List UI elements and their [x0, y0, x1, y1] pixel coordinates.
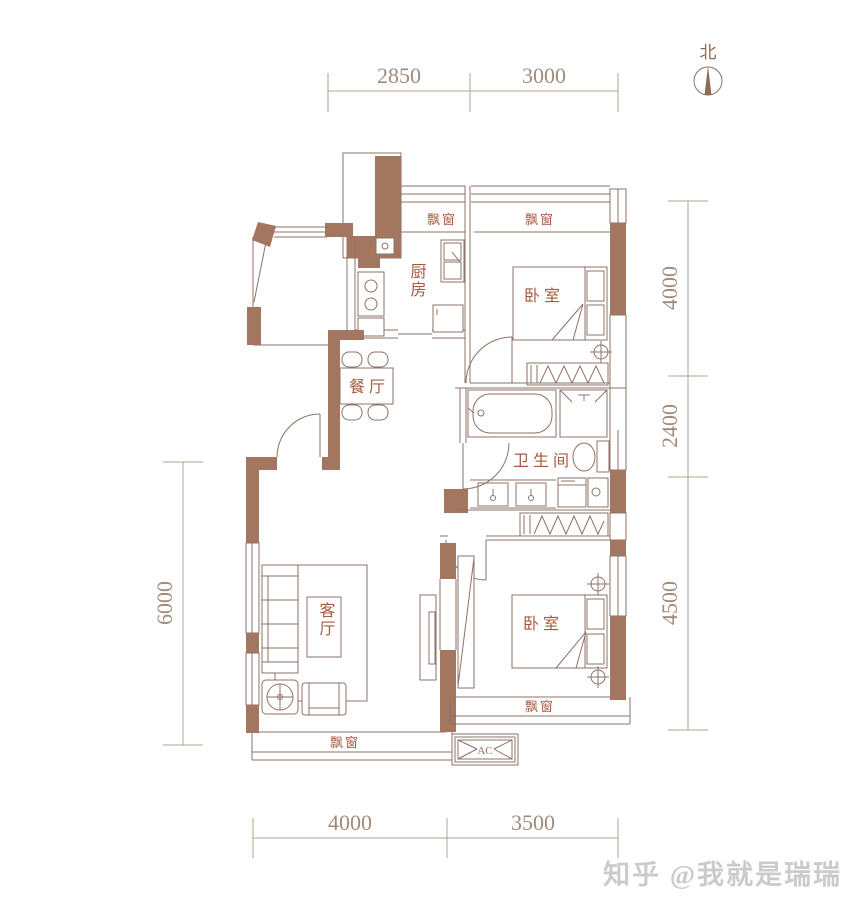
wardrobe-hall: [520, 513, 608, 536]
toilet: [573, 441, 609, 472]
floorplan-drawing: 北 2850 3000 4000 2400 4500 6000 4000 350…: [0, 0, 850, 905]
kitchen-baywindow-label: 飘窗: [427, 212, 457, 227]
dim-right-3: 4500: [657, 581, 682, 625]
blanket-fold: [552, 304, 583, 340]
dimension-top: 2850 3000: [328, 63, 618, 112]
bedroom-top-door: [466, 337, 512, 383]
living-label: 客厅: [317, 602, 336, 638]
fan: [262, 680, 298, 714]
washing-machine: [558, 478, 586, 507]
bathtub: [468, 390, 556, 437]
living-baywindow-label: 飘窗: [330, 735, 360, 750]
north-label: 北: [700, 43, 717, 62]
tv-stand: [420, 595, 436, 680]
bathroom: 卫生间: [444, 388, 626, 513]
chair: [342, 405, 362, 420]
floorplan-page: 北 2850 3000 4000 2400 4500 6000 4000 350…: [0, 0, 850, 905]
ceiling-symbol: [590, 341, 612, 363]
chair: [368, 352, 388, 367]
sofa: [262, 565, 298, 673]
chair: [368, 405, 388, 420]
dim-top-2: 3000: [522, 63, 566, 88]
pillow: [587, 634, 604, 664]
wardrobe: [527, 363, 608, 385]
dim-top-1: 2850: [377, 63, 421, 88]
bedroom-top: 卧室 飘窗: [455, 186, 626, 388]
ac-label: AC: [477, 745, 492, 757]
sliding-wardrobe: [458, 556, 474, 688]
utility-box: [588, 478, 608, 507]
dim-bottom-1: 4000: [328, 810, 372, 835]
watermark: 知乎 @我就是瑞瑞: [603, 860, 842, 890]
stove: [358, 272, 384, 316]
living-room: 客厅 飘窗: [246, 543, 456, 760]
bedroom-top-label: 卧室: [524, 287, 564, 305]
ac-platform: AC: [452, 734, 518, 765]
bedroom-top-baywindow-label: 飘窗: [525, 212, 555, 227]
ceiling-symbol: [587, 573, 609, 595]
bathroom-label: 卫生间: [513, 452, 573, 470]
dim-right-2: 2400: [657, 404, 682, 448]
west-window-strip: [247, 222, 355, 345]
dimension-right: 4000 2400 4500: [657, 201, 708, 730]
entry-door: [277, 414, 320, 457]
dim-right-1: 4000: [657, 266, 682, 310]
north-arrow: 北: [694, 43, 722, 95]
corner-wall: [252, 222, 276, 247]
window-diagonal: [254, 242, 266, 302]
pillow: [587, 271, 604, 301]
pillow: [587, 599, 604, 629]
flue-structure: [343, 153, 401, 268]
dim-bottom-2: 3500: [511, 810, 555, 835]
armchair: [302, 683, 346, 715]
dining-room: 餐厅: [328, 330, 393, 470]
entry: [246, 414, 340, 543]
north-needle-icon: [705, 66, 712, 95]
duct-box: [376, 238, 394, 254]
dim-left-1: 6000: [152, 581, 177, 625]
blanket-fold: [556, 632, 586, 668]
chair: [342, 352, 362, 367]
living-baywindow: 飘窗: [252, 732, 452, 760]
bedroom-bottom-baywindow-label: 飘窗: [525, 699, 555, 714]
dimension-left: 6000: [152, 462, 203, 745]
dimension-bottom: 4000 3500: [253, 810, 618, 858]
bedroom-bottom-baywindow: 飘窗: [450, 697, 630, 724]
ceiling-symbol: [587, 666, 609, 688]
shower: [560, 390, 607, 437]
bedroom-bottom: 飘窗 卧室: [450, 540, 630, 724]
pillow: [587, 305, 604, 335]
kitchen-label: 厨房: [408, 263, 427, 299]
bedroom-bottom-label: 卧室: [523, 615, 563, 633]
dining-label: 餐厅: [349, 378, 389, 396]
bathroom-door: [463, 443, 509, 489]
